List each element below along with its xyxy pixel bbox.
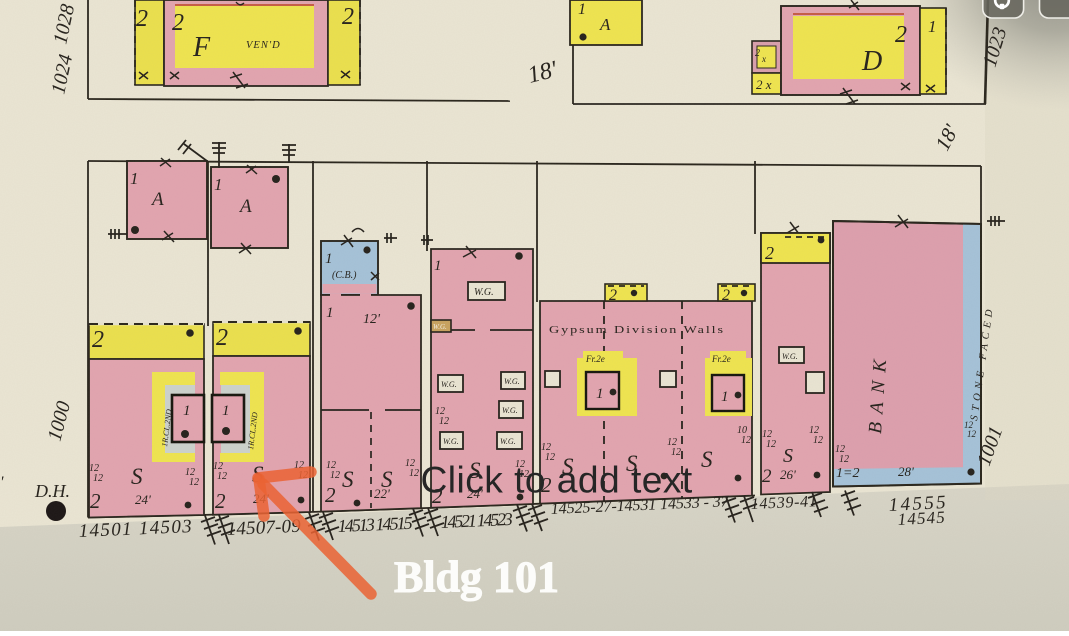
svg-text:Click to add text: Click to add text xyxy=(421,459,693,501)
svg-text:Bldg 101: Bldg 101 xyxy=(394,553,559,602)
